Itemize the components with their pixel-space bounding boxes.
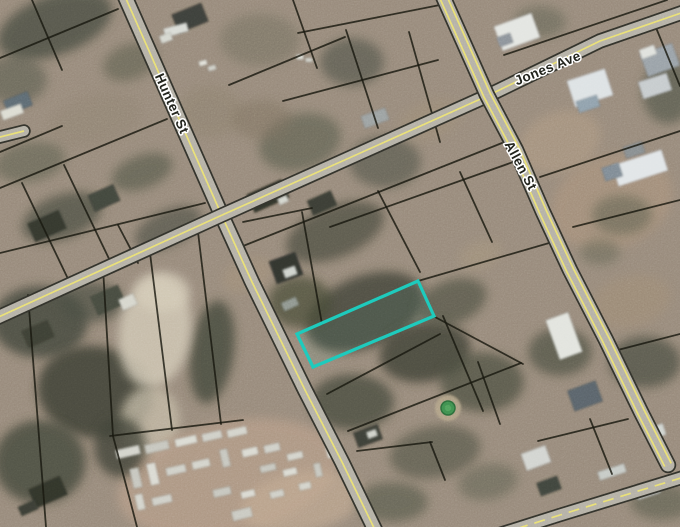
map-canvas: Hunter StJones AveAllen St <box>0 0 680 527</box>
photo-grain-overlay <box>0 0 680 527</box>
aerial-parcel-map[interactable]: Hunter StJones AveAllen St <box>0 0 680 527</box>
